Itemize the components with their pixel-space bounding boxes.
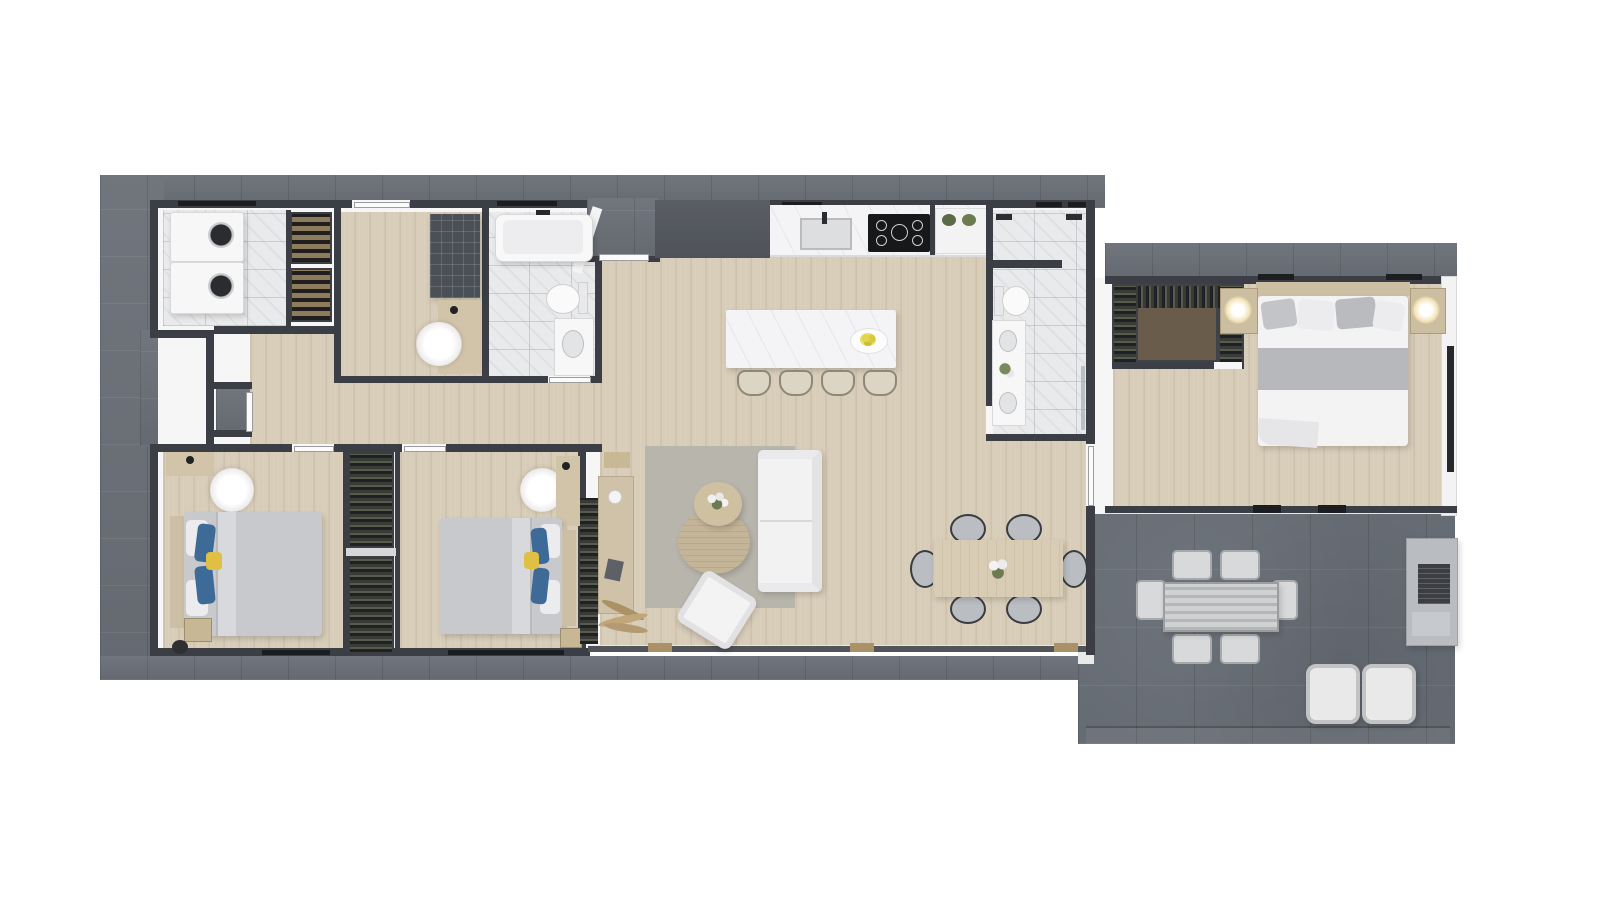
sofa-seam [760, 520, 812, 522]
wall-main-right [1086, 200, 1095, 655]
toilet1-bowl [546, 284, 580, 314]
bedroom2-headboard [562, 530, 576, 626]
burner-1 [876, 220, 887, 231]
extension-ceiling-light-2 [1386, 274, 1422, 280]
side-entry-floor [216, 388, 250, 432]
wall-office-bath [482, 205, 489, 383]
kitchen-faucet [822, 212, 827, 224]
burner-4 [912, 220, 923, 231]
master-slider-2 [1318, 505, 1346, 513]
master-suite-door-leaf [1088, 446, 1094, 506]
bedroom1-nightstand [184, 618, 212, 642]
wardrobe-upper [348, 452, 394, 548]
bedroom2-duvet-fold [512, 518, 532, 634]
bbq-grill [1418, 564, 1450, 604]
shelf-plant-1 [942, 214, 956, 226]
burner-3 [891, 224, 908, 241]
extension-ceiling-light-1 [1258, 274, 1294, 280]
wall-bedroom1-top [150, 444, 402, 452]
bedroom1-headboard [170, 516, 184, 628]
patio-step-edge [1086, 726, 1450, 746]
wall-laundry-bottom [214, 326, 338, 334]
bedroom2-nightstand [560, 628, 582, 648]
wardrobe-lower [348, 556, 394, 654]
bar-stool-3 [821, 370, 855, 396]
cubby-cabinet [430, 214, 480, 298]
vanity1-sink [562, 330, 584, 358]
master-pillow-gray-2 [1335, 296, 1377, 329]
outdoor-chair-bottom-1 [1172, 634, 1212, 664]
walkin-closet-floor [1138, 306, 1216, 360]
lemons [860, 333, 876, 346]
master-duvet-fold [1257, 418, 1319, 448]
bedroom2-pillow-yellow [524, 552, 539, 569]
walkin-closet-opening [1214, 362, 1242, 369]
wall-left-upper [150, 200, 158, 338]
wine-rack-upper [290, 212, 332, 264]
toilet2-bowl [1002, 286, 1030, 316]
bedroom1-door-leaf [294, 446, 334, 452]
side-entry-wall-top [212, 382, 252, 389]
exterior-stone-bottom [100, 656, 1105, 680]
master-lamp-left [1224, 296, 1252, 324]
burner-2 [876, 235, 887, 246]
window-bedroom1 [262, 650, 330, 655]
wall-recess-top [150, 330, 214, 338]
walkin-clothes-left [1114, 286, 1136, 362]
extension-wall-bottom [1105, 506, 1457, 514]
bedroom1-pillow-yellow [206, 552, 222, 570]
office-fluffy-chair [416, 322, 462, 366]
kitchen-tall-cabinets [655, 200, 770, 258]
dining-chair-bottom-1 [950, 594, 986, 624]
hall-bench [604, 452, 630, 468]
master-lamp-right [1412, 296, 1440, 324]
slider-handle-2 [850, 643, 874, 652]
outdoor-chair-top-2 [1220, 550, 1260, 580]
slider-handle-1 [648, 643, 672, 652]
bar-stool-1 [737, 370, 771, 396]
outdoor-table [1163, 582, 1279, 632]
bathtub-inner [503, 220, 583, 254]
floor-plan-canvas [0, 0, 1600, 899]
outdoor-chair-left [1136, 580, 1166, 620]
master-vanity-flowers [997, 360, 1017, 382]
master-blanket-stripe [1258, 348, 1408, 390]
master-pillow-white-2 [1372, 300, 1406, 332]
sideboard-decor-vase [608, 490, 622, 504]
open-shelf [935, 208, 987, 254]
bath1-faucet [536, 210, 550, 215]
wall-office-left [334, 205, 341, 383]
bedroom2-desk-lamp [562, 462, 570, 470]
bedroom1-pillow-blue-2 [194, 565, 216, 605]
slider-handle-3 [1054, 643, 1078, 652]
shelf-plant-2 [962, 214, 976, 226]
shower-head-left [996, 214, 1012, 220]
side-door-leaf [246, 392, 253, 432]
coffee-table-flowers [704, 490, 730, 512]
dining-centerpiece [984, 556, 1012, 580]
outdoor-chair-top-1 [1172, 550, 1212, 580]
lounge-chair-1 [1306, 664, 1360, 724]
master-pillow-white-1 [1297, 298, 1335, 331]
bedroom2-side-wardrobe [580, 498, 598, 644]
window-masterbath-a [1036, 202, 1062, 207]
wardrobe-shelf [346, 548, 396, 556]
master-slider-1 [1253, 505, 1281, 513]
hallway-floor-a [250, 334, 338, 444]
lounge-chair-2 [1362, 664, 1416, 724]
shower-head-right [1066, 214, 1082, 220]
master-pillow-gray-1 [1260, 298, 1298, 330]
hallway-floor-b [338, 383, 600, 444]
dryer-door [208, 273, 234, 299]
office-desk-lamp [450, 306, 458, 314]
window-bedroom2 [448, 650, 564, 655]
wall-masterbath-bottom [986, 434, 1095, 441]
front-door-leaf [599, 254, 649, 261]
shower-glass [1081, 366, 1085, 430]
dining-chair-bottom-2 [1006, 594, 1042, 624]
master-sink-1 [999, 330, 1017, 352]
washer-door [208, 222, 234, 248]
bedroom2-door-leaf [404, 446, 446, 452]
bedroom1-duvet-fold [216, 512, 236, 636]
masterbath-halfwall [992, 260, 1062, 268]
outdoor-chair-bottom-2 [1220, 634, 1260, 664]
wall-left-lower [150, 444, 158, 656]
bbq-shelf [1412, 612, 1450, 636]
bedroom1-stool [172, 640, 188, 654]
window-bathroom1 [497, 201, 557, 206]
master-sink-2 [999, 392, 1017, 414]
bar-stool-4 [863, 370, 897, 396]
window-laundry [178, 201, 256, 206]
master-window-panel [1447, 346, 1454, 472]
bedroom1-desk-lamp [186, 456, 194, 464]
dining-chair-right [1060, 550, 1088, 588]
wine-rack-lower [290, 268, 332, 322]
bar-stool-2 [779, 370, 813, 396]
bath1-door-leaf [549, 377, 591, 383]
master-headboard [1256, 282, 1410, 296]
office-door-leaf [354, 202, 410, 208]
burner-5 [912, 235, 923, 246]
extension-stone-top [1105, 243, 1457, 278]
bedroom1-fluffy-chair [210, 468, 254, 512]
